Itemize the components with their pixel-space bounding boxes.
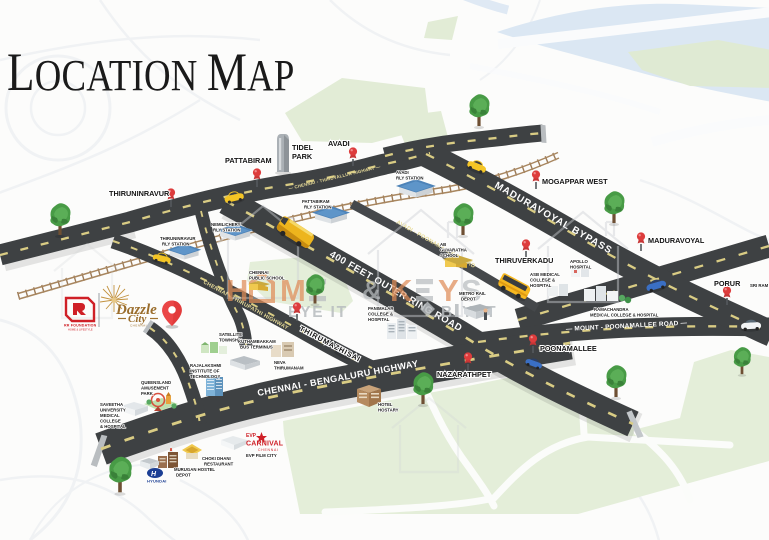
svg-text:PATTABIRAM: PATTABIRAM [225, 156, 272, 165]
svg-text:THIRUNINRAVUR: THIRUNINRAVUR [160, 236, 196, 241]
svg-text:SRI RAM: SRI RAM [750, 283, 769, 288]
svg-text:APOLLO: APOLLO [570, 259, 589, 264]
svg-text:COLLEGE &: COLLEGE & [530, 278, 555, 283]
svg-text:DEPOT: DEPOT [461, 297, 476, 302]
svg-text:PARK: PARK [292, 152, 313, 161]
svg-text:HOSPITAL: HOSPITAL [570, 265, 592, 270]
svg-text:KUTHAMBAKKAM: KUTHAMBAKKAM [238, 339, 276, 344]
svg-text:EVP: EVP [246, 433, 257, 439]
svg-text:PATTABIRAM: PATTABIRAM [302, 199, 330, 204]
svg-text:HOSTARY: HOSTARY [378, 408, 399, 413]
svg-text:CHENNAI: CHENNAI [249, 270, 269, 275]
svg-text:LOCATION MAP: LOCATION MAP [7, 42, 295, 102]
svg-text:RLY STATION: RLY STATION [162, 242, 190, 247]
svg-text:HYUNDAI: HYUNDAI [147, 479, 167, 484]
svg-text:COLLEGE &: COLLEGE & [368, 312, 393, 317]
svg-text:PORUR: PORUR [714, 279, 741, 288]
svg-text:METRO RAIL: METRO RAIL [459, 291, 486, 296]
svg-text:PANIMALAR: PANIMALAR [368, 306, 394, 311]
svg-text:K: K [390, 273, 413, 308]
svg-text:TIDEL: TIDEL [292, 143, 314, 152]
svg-text:NEMILICHERY: NEMILICHERY [211, 222, 241, 227]
svg-text:SATELLITE: SATELLITE [219, 332, 242, 337]
svg-text:& HOSPITAL: & HOSPITAL [100, 424, 126, 429]
svg-text:HOTEL: HOTEL [378, 402, 393, 407]
svg-text:BUS TERMINUS: BUS TERMINUS [240, 345, 273, 350]
svg-text:GUVARATHA: GUVARATHA [440, 248, 467, 253]
svg-text:CHOKI DHANI: CHOKI DHANI [202, 456, 231, 461]
svg-text:THIRUVERKADU: THIRUVERKADU [495, 256, 553, 265]
svg-text:RAMACHANDRA: RAMACHANDRA [594, 307, 629, 312]
svg-text:PARK: PARK [141, 391, 154, 396]
svg-text:THIRUMANAM: THIRUMANAM [274, 366, 304, 371]
svg-text:MOGAPPAR WEST: MOGAPPAR WEST [542, 177, 608, 186]
svg-text:CHENNAI: CHENNAI [130, 324, 147, 328]
svg-text:COLLEGE: COLLEGE [100, 419, 121, 424]
svg-text:TECHNOLOGY: TECHNOLOGY [190, 374, 220, 379]
svg-text:THIRUNINRAVUR: THIRUNINRAVUR [109, 189, 170, 198]
svg-text:NAZARATHPET: NAZARATHPET [437, 370, 492, 379]
svg-text:HOSPITAL: HOSPITAL [368, 317, 390, 322]
svg-text:CHENNAI: CHENNAI [258, 448, 279, 452]
svg-text:RR FOUNDATION: RR FOUNDATION [64, 324, 97, 328]
svg-text:Y: Y [438, 273, 459, 308]
svg-text:INSTITUTE OF: INSTITUTE OF [190, 369, 220, 374]
svg-text:PUBLIC SCHOOL: PUBLIC SCHOOL [249, 276, 285, 281]
svg-text:NEVA: NEVA [274, 360, 286, 365]
svg-text:MURUGAN HOSTEL: MURUGAN HOSTEL [174, 467, 215, 472]
svg-text:UNIVERSITY: UNIVERSITY [100, 408, 126, 413]
svg-text:SAVEETHA: SAVEETHA [100, 402, 123, 407]
svg-text:AMUSEMENT: AMUSEMENT [141, 386, 169, 391]
svg-text:EVP FILM CITY: EVP FILM CITY [246, 453, 277, 458]
svg-text:RLY STATION: RLY STATION [304, 205, 332, 210]
svg-text:B: B [441, 304, 454, 321]
svg-text:POONAMALLEE: POONAMALLEE [540, 344, 597, 353]
svg-text:CARNIVAL: CARNIVAL [246, 441, 284, 448]
svg-text:HOME & LIFESTYLE: HOME & LIFESTYLE [68, 328, 93, 332]
svg-text:MADURAVOYAL: MADURAVOYAL [648, 236, 705, 245]
svg-text:MEDICAL COLLEGE & HOSPITAL: MEDICAL COLLEGE & HOSPITAL [590, 313, 659, 318]
svg-text:MEDICAL: MEDICAL [100, 413, 120, 418]
svg-text:H: H [226, 273, 248, 308]
svg-text:AVADI: AVADI [396, 170, 409, 175]
svg-text:RESTAURANT: RESTAURANT [204, 462, 234, 467]
svg-text:SCHOOL: SCHOOL [440, 253, 459, 258]
svg-text:RLY STATION: RLY STATION [213, 228, 241, 233]
svg-text:&: & [362, 275, 381, 305]
svg-text:ASB MEDICAL: ASB MEDICAL [530, 272, 560, 277]
svg-text:AB: AB [440, 242, 446, 247]
svg-text:RAJALAKSHMI: RAJALAKSHMI [190, 363, 221, 368]
svg-text:QUEENSLAND: QUEENSLAND [141, 380, 171, 385]
svg-text:HOSPITAL: HOSPITAL [530, 283, 552, 288]
svg-text:RLY STATION: RLY STATION [396, 176, 424, 181]
svg-text:AVADI: AVADI [328, 139, 350, 148]
svg-text:DEPOT: DEPOT [176, 473, 191, 478]
